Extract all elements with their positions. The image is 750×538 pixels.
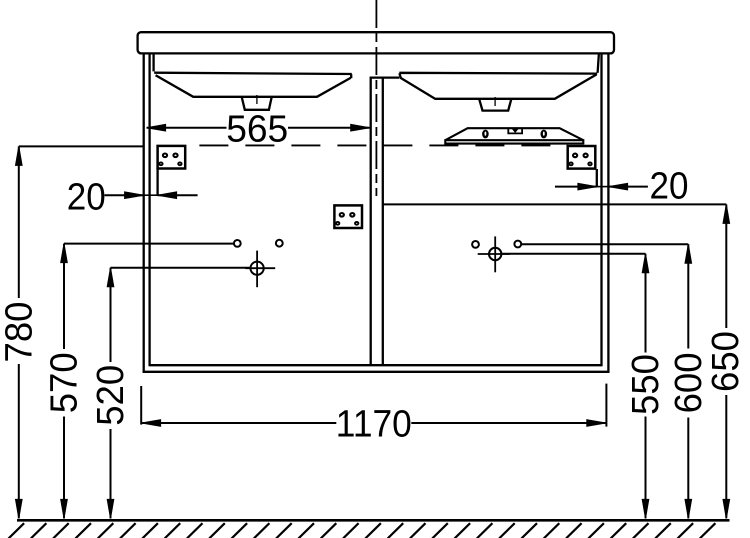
svg-text:780: 780 [0,302,40,363]
svg-text:1170: 1170 [336,404,412,446]
svg-text:565: 565 [226,108,288,150]
svg-text:570: 570 [44,352,86,413]
svg-text:650: 650 [705,331,747,392]
svg-text:520: 520 [90,365,132,426]
svg-text:600: 600 [668,352,710,413]
svg-text:550: 550 [625,354,667,415]
svg-text:20: 20 [67,176,106,218]
svg-text:20: 20 [650,165,689,207]
